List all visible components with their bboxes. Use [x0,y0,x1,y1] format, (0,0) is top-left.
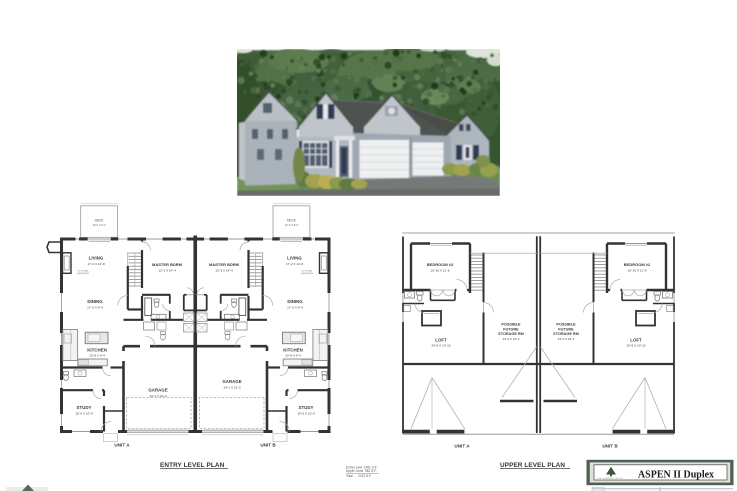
svg-text:10'-0 X 8'-0: 10'-0 X 8'-0 [92,223,106,227]
svg-text:17'-2 X 9'-4: 17'-2 X 9'-4 [287,306,303,310]
svg-text:17'-2 X 14'-8: 17'-2 X 14'-8 [87,262,105,266]
svg-text:14'-1 X 21'-2: 14'-1 X 21'-2 [149,394,167,398]
svg-text:LOFT: LOFT [435,338,447,343]
svg-text:20'-8 X 10'-10: 20'-8 X 10'-10 [626,344,645,348]
svg-text:ASPEN II Duplex: ASPEN II Duplex [638,469,714,480]
svg-text:STORAGE RM: STORAGE RM [498,332,524,336]
svg-text:THE SOMERSET GROUP: THE SOMERSET GROUP [597,478,623,480]
svg-text:FIREPLACE: FIREPLACE [301,272,314,275]
svg-text:MASTER BDRM: MASTER BDRM [152,262,183,267]
svg-text:17'-2 X 9'-4: 17'-2 X 9'-4 [87,306,103,310]
svg-text:UNIT B: UNIT B [260,443,276,448]
svg-text:FUTURE: FUTURE [558,327,574,331]
svg-text:14'-1 X 21'-2: 14'-1 X 21'-2 [223,386,241,390]
svg-text:BEDROOM #2: BEDROOM #2 [624,262,651,267]
svg-text:Upper Level 981 S.F.: Upper Level 981 S.F. [346,469,377,473]
svg-text:13'-3 X 14'-4: 13'-3 X 14'-4 [158,269,176,273]
svg-text:LOFT: LOFT [630,338,642,343]
svg-text:13'-3 X 14'-4: 13'-3 X 14'-4 [215,269,233,273]
svg-text:GARAGE: GARAGE [222,379,241,384]
svg-text:UNIT A: UNIT A [454,444,470,449]
svg-text:10'-0 X 8'-0: 10'-0 X 8'-0 [285,223,299,227]
svg-text:UPPER LEVEL PLAN: UPPER LEVEL PLAN [500,462,565,469]
svg-text:FUTURE: FUTURE [503,327,519,331]
svg-text:UNIT A: UNIT A [114,443,130,448]
svg-text:KITCHEN: KITCHEN [283,348,303,353]
svg-text:POSSIBLE: POSSIBLE [556,323,576,327]
svg-text:GARAGE: GARAGE [148,388,167,393]
svg-text:UNIT B: UNIT B [602,444,618,449]
svg-text:DECK: DECK [95,219,105,223]
svg-text:13'-2 X 19'-2: 13'-2 X 19'-2 [558,337,575,341]
svg-text:10'-0 X 10'-0: 10'-0 X 10'-0 [297,412,315,416]
svg-text:LIVING: LIVING [287,256,302,261]
svg-text:10'-0 X 10'-0: 10'-0 X 10'-0 [75,412,93,416]
svg-text:17'-2 X 14'-8: 17'-2 X 14'-8 [286,262,304,266]
svg-text:MASTER BDRM: MASTER BDRM [209,262,240,267]
svg-text:ENTRY LEVEL PLAN: ENTRY LEVEL PLAN [160,462,225,469]
svg-text:STUDY: STUDY [299,405,314,410]
svg-text:KITCHEN: KITCHEN [87,348,107,353]
svg-text:LIVING: LIVING [89,256,104,261]
svg-text:10'-8 X 9'-4: 10'-8 X 9'-4 [89,354,105,358]
svg-text:BEDROOM #2: BEDROOM #2 [427,262,454,267]
svg-text:Total 2472 S.F.: Total 2472 S.F. [346,474,372,478]
svg-text:20'-8 X 10'-10: 20'-8 X 10'-10 [431,344,450,348]
svg-text:10'-8 X 9'-4: 10'-8 X 9'-4 [285,354,301,358]
svg-text:DECK: DECK [287,219,297,223]
svg-text:10'-10 X 11'-8: 10'-10 X 11'-8 [431,269,450,273]
svg-text:STUDY: STUDY [77,405,92,410]
svg-text:13'-2 X 19'-2: 13'-2 X 19'-2 [503,337,520,341]
svg-text:FIREPLACE: FIREPLACE [77,272,90,275]
svg-text:OPTIONAL: OPTIONAL [77,270,89,273]
svg-text:DINING: DINING [287,299,303,304]
svg-text:POSSIBLE: POSSIBLE [501,323,521,327]
svg-text:OPTIONAL: OPTIONAL [301,270,313,273]
svg-text:DINING: DINING [87,299,103,304]
svg-text:10'-10 X 11'-8: 10'-10 X 11'-8 [628,269,647,273]
svg-text:STORAGE RM: STORAGE RM [553,332,579,336]
